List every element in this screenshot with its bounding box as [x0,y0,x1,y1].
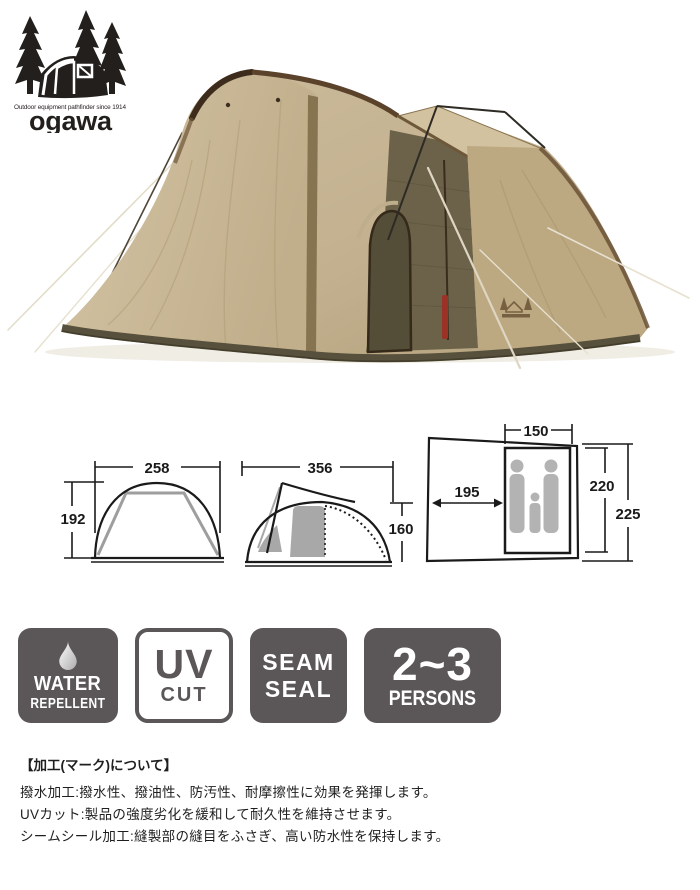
floor-plan-diagram: 150 195 220 225 [427,423,641,561]
badge-label: PERSONS [389,687,476,711]
water-drop-icon [56,640,80,671]
notes-heading: 【加工(マーク)について】 [20,754,620,774]
badge-label: SEAM [262,649,334,676]
inner-door-arch [368,211,411,352]
grommet [226,103,230,107]
dim-inner-length: 220 [589,478,614,495]
badge-label: CUT [160,683,207,707]
grommet [276,98,280,102]
tent-right-panel [467,146,648,351]
dimension-diagrams: 258 192 356 160 [0,420,700,605]
badge-label: UV [155,645,214,683]
badge-seam-seal: SEAM SEAL [250,628,347,723]
corner-trim-strip [306,95,318,355]
badge-label: REPELLENT [31,695,106,713]
badge-label: SEAL [265,676,332,703]
dim-front-width: 258 [144,460,169,477]
dim-vestibule-depth: 195 [454,484,479,501]
inner-tent-dotted-arc [325,506,386,560]
tent-product-photo [0,0,700,400]
dim-front-height: 192 [60,511,85,528]
badge-water-repellent: WATER REPELLENT [18,628,118,723]
side-view-diagram: 356 160 [242,460,414,566]
note-line: UVカット:製品の強度劣化を緩和して耐久性を維持させます。 [20,804,620,826]
red-zip-strap [442,295,448,339]
product-info-page: Outdoor equipment pathfinder since 1914 … [0,0,700,890]
badge-uv-cut: UV CUT [135,628,233,723]
badge-label: WATER [34,673,101,695]
side-door-large [290,506,325,557]
tent-front-panel [62,72,316,355]
feature-badges: WATER REPELLENT UV CUT SEAM SEAL 2~3 PER… [18,628,501,723]
dim-side-height: 160 [388,521,413,538]
dim-side-width: 356 [307,460,332,477]
dim-total-length: 225 [615,506,640,523]
badge-capacity: 2~3 PERSONS [364,628,501,723]
front-view-diagram: 258 192 [60,460,224,562]
badge-label: 2~3 [392,641,473,687]
note-line: 撥水加工:撥水性、撥油性、防汚性、耐摩擦性に効果を発揮します。 [20,782,620,804]
dim-floor-width: 150 [523,423,548,440]
processing-notes: 【加工(マーク)について】 撥水加工:撥水性、撥油性、防汚性、耐摩擦性に効果を発… [20,754,620,848]
note-line: シームシール加工:縫製部の縫目をふさぎ、高い防水性を保持します。 [20,826,620,848]
